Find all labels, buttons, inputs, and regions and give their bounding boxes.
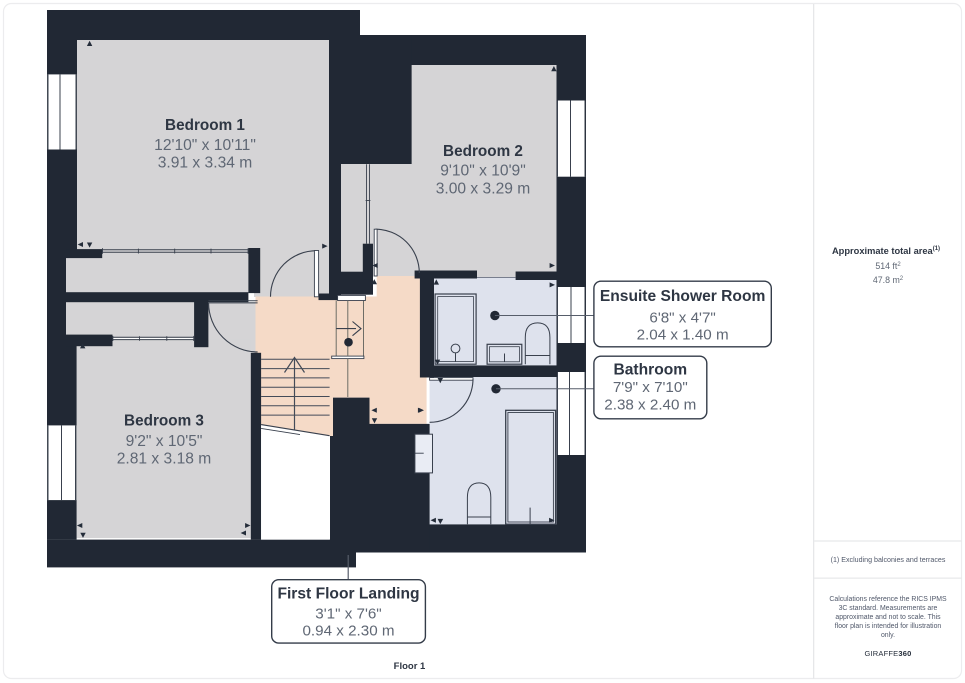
svg-text:0.94 x 2.30 m: 0.94 x 2.30 m <box>302 622 394 639</box>
svg-text:6'8" x 4'7": 6'8" x 4'7" <box>649 310 715 327</box>
svg-text:3.00 x 3.29 m: 3.00 x 3.29 m <box>436 181 530 198</box>
svg-text:approximate and not to scale.: approximate and not to scale. This <box>835 614 941 621</box>
svg-text:12'10" x 10'11": 12'10" x 10'11" <box>154 137 256 154</box>
svg-text:3'1" x 7'6": 3'1" x 7'6" <box>315 606 381 623</box>
svg-text:Bathroom: Bathroom <box>613 361 687 378</box>
svg-text:Ensuite Shower Room: Ensuite Shower Room <box>600 288 766 305</box>
svg-text:only.: only. <box>881 632 895 639</box>
svg-text:3C standard. Measurements are: 3C standard. Measurements are <box>839 605 938 612</box>
svg-text:(1) Excluding balconies and te: (1) Excluding balconies and terraces <box>831 556 946 564</box>
svg-text:2.04 x 1.40 m: 2.04 x 1.40 m <box>637 326 729 343</box>
svg-text:3.91 x 3.34 m: 3.91 x 3.34 m <box>158 154 252 171</box>
svg-text:GIRAFFE360: GIRAFFE360 <box>864 649 911 658</box>
svg-text:Bedroom 1: Bedroom 1 <box>165 117 245 134</box>
svg-text:Floor 1: Floor 1 <box>394 661 426 672</box>
svg-text:9'2" x 10'5": 9'2" x 10'5" <box>126 433 203 450</box>
svg-text:47.8 m2: 47.8 m2 <box>873 275 904 285</box>
svg-text:Bedroom 3: Bedroom 3 <box>124 413 204 430</box>
svg-text:2.81 x 3.18 m: 2.81 x 3.18 m <box>117 451 211 468</box>
svg-text:7'9" x 7'10": 7'9" x 7'10" <box>613 379 688 396</box>
svg-text:2.38 x 2.40 m: 2.38 x 2.40 m <box>604 396 696 413</box>
svg-text:Approximate total area(1): Approximate total area(1) <box>832 246 940 256</box>
svg-text:9'10" x 10'9": 9'10" x 10'9" <box>440 163 526 180</box>
svg-text:First Floor Landing: First Floor Landing <box>277 585 419 602</box>
svg-text:Calculations reference the RIC: Calculations reference the RICS IPMS <box>829 596 947 603</box>
svg-text:Bedroom 2: Bedroom 2 <box>443 143 523 160</box>
svg-text:floor plan is intended for ill: floor plan is intended for illustration <box>835 623 942 630</box>
